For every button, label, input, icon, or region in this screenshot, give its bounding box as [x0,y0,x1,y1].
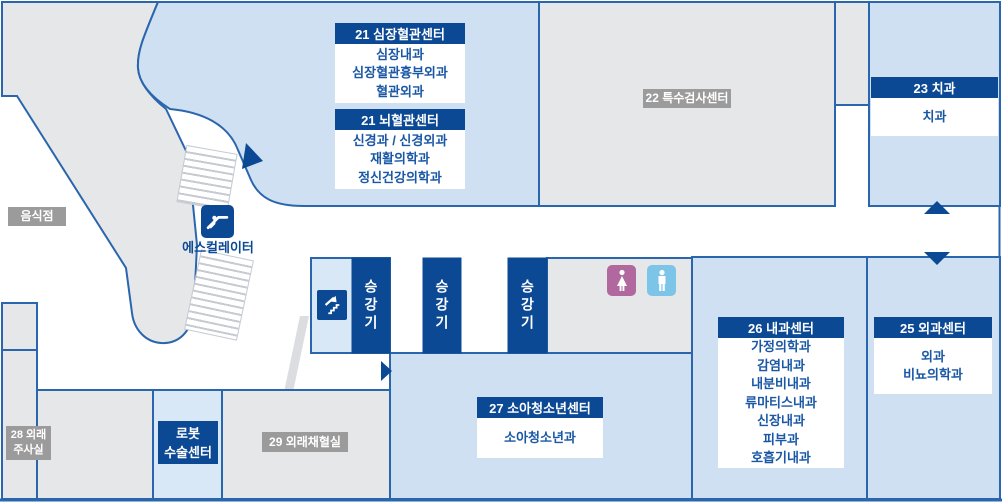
special-exam-center-label: 22 특수검사센터 [643,89,731,108]
cerebrovascular-center-departments: 신경과 / 신경외과 재활의학과 정신건강의학과 [335,130,465,189]
dental-center-departments: 치과 [871,98,998,136]
internal-medicine-center-departments: 가정의학과 감염내과 내분비내과 류마티스내과 신장내과 피부과 호흡기내과 [718,338,844,468]
ramp-shape [284,316,309,392]
dental-center-header: 23 치과 [871,77,998,98]
escalator-label: 에스컬레이터 [176,237,260,256]
internal-medicine-center-header: 26 내과센터 [718,317,844,338]
escalator-icon [201,205,234,238]
male-restroom-icon [647,265,676,296]
surgery-center-header: 25 외과센터 [874,317,992,338]
small-room-shape [2,303,37,350]
injection-room-shape [2,350,37,499]
outpatient-blood-room-label: 29 외래채혈실 [262,432,348,452]
pediatrics-center-departments: 소아청소년과 [477,418,603,458]
escalator-steps-upper [176,145,237,211]
cardiovascular-center-departments: 심장내과 심장혈관흉부외과 혈관외과 [335,44,465,103]
elevator-1-label: 승강기 [352,258,390,353]
surgery-center-departments: 외과 비뇨의학과 [874,338,992,394]
side-strip-shape [835,2,869,105]
elevator-2-label: 승강기 [423,258,461,353]
female-restroom-icon [607,265,636,296]
stairs-up-icon [315,288,349,322]
restaurant-label: 음식점 [8,207,66,226]
hospital-floor-map: 에스컬레이터 승강기 승강기 승강기 음식점 22 특수검사센터 28 외래 [0,0,1002,502]
cerebrovascular-center-header: 21 뇌혈관센터 [335,109,465,130]
robot-surgery-center-label: 로봇 수술센터 [158,421,218,464]
elevator-3-label: 승강기 [508,258,547,353]
pediatrics-center-header: 27 소아청소년센터 [477,397,603,418]
bottom-gray-room-shape [37,390,153,499]
outpatient-injection-room-label: 28 외래 주사실 [6,426,51,460]
cardiovascular-center-header: 21 심장혈관센터 [335,23,465,44]
